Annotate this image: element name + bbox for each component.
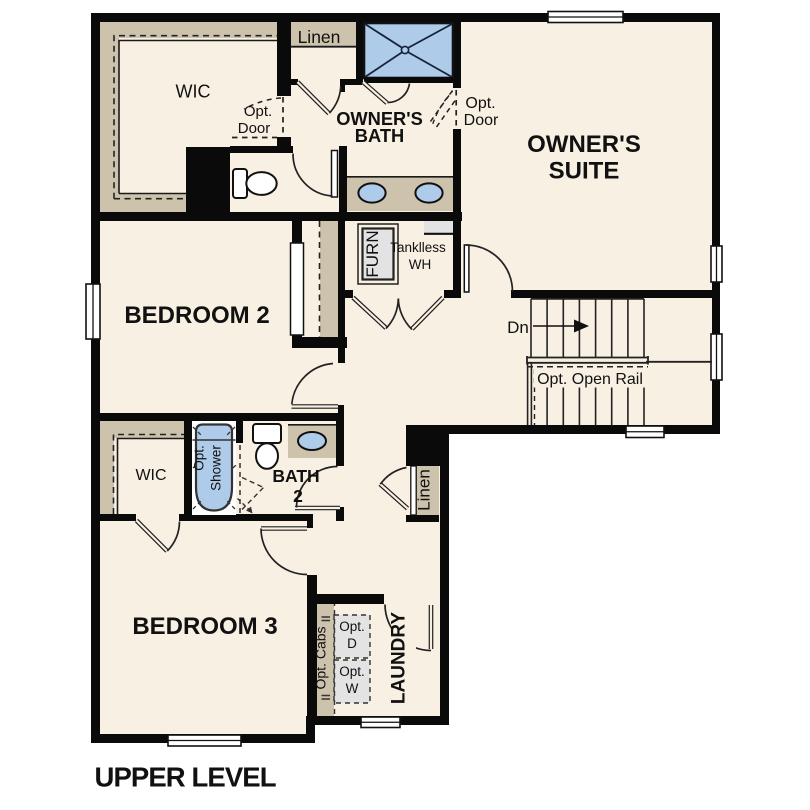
svg-text:Tanklless: Tanklless — [390, 240, 446, 255]
svg-text:Opt.: Opt. — [465, 95, 495, 112]
svg-text:Door: Door — [464, 112, 499, 129]
svg-text:Linen: Linen — [415, 469, 434, 511]
svg-text:LAUNDRY: LAUNDRY — [389, 612, 410, 705]
svg-text:Opt.: Opt. — [244, 103, 272, 120]
svg-text:Linen: Linen — [298, 27, 341, 47]
svg-text:WH: WH — [409, 257, 432, 272]
svg-text:BATH: BATH — [272, 466, 319, 486]
svg-text:BEDROOM 2: BEDROOM 2 — [124, 302, 269, 329]
svg-text:Opt.: Opt. — [339, 619, 365, 634]
svg-text:FURN: FURN — [363, 230, 382, 277]
svg-text:SUITE: SUITE — [549, 158, 620, 185]
svg-text:BEDROOM 3: BEDROOM 3 — [132, 613, 277, 640]
svg-text:Door: Door — [238, 120, 271, 137]
svg-text:Shower: Shower — [209, 445, 224, 491]
svg-text:Opt. Open Rail: Opt. Open Rail — [537, 371, 643, 388]
svg-text:BATH: BATH — [355, 125, 404, 146]
svg-text:W: W — [346, 681, 359, 696]
svg-text:Opt.: Opt. — [192, 445, 207, 471]
svg-text:WIC: WIC — [176, 82, 211, 102]
svg-text:D: D — [347, 636, 357, 651]
svg-text:Opt. Cabs: Opt. Cabs — [313, 626, 329, 689]
svg-text:WIC: WIC — [135, 467, 166, 484]
svg-text:2: 2 — [293, 486, 303, 506]
svg-text:Dn: Dn — [507, 318, 529, 337]
svg-text:UPPER LEVEL: UPPER LEVEL — [95, 762, 276, 793]
svg-text:OWNER'S: OWNER'S — [527, 131, 641, 158]
svg-text:Opt.: Opt. — [339, 664, 365, 679]
